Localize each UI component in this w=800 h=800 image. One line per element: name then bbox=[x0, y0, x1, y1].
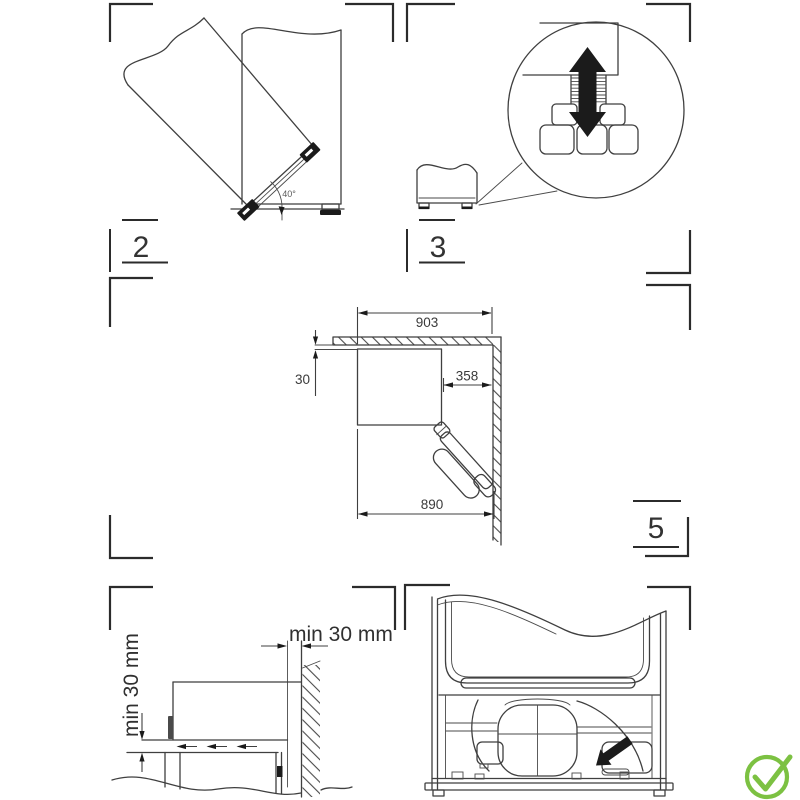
base-plate bbox=[425, 783, 673, 790]
panel-door-tilt: 2 40° bbox=[110, 4, 393, 272]
crop-mark bbox=[110, 587, 153, 630]
open-door bbox=[417, 421, 501, 509]
break-line bbox=[124, 18, 204, 85]
leveling-foot bbox=[609, 125, 638, 154]
back-panel bbox=[446, 600, 650, 683]
hinge bbox=[299, 142, 320, 163]
crop-mark bbox=[110, 4, 153, 42]
floor-break-line bbox=[112, 777, 301, 794]
appliance-door-edge bbox=[168, 716, 173, 739]
callout-tail bbox=[476, 163, 557, 205]
crop-mark bbox=[405, 585, 450, 630]
mounting-rails bbox=[446, 723, 651, 733]
panel-number: 5 bbox=[648, 512, 665, 545]
tilted-cabinet-edge bbox=[204, 18, 313, 146]
airflow-arrow-icon bbox=[177, 744, 187, 749]
foot-pad bbox=[462, 207, 472, 210]
base-foot bbox=[433, 790, 444, 796]
crop-mark bbox=[345, 4, 393, 42]
fridge-top-view bbox=[358, 349, 442, 425]
airflow-arrow-icon bbox=[237, 744, 247, 749]
compressor-dome bbox=[505, 699, 570, 705]
panel-number: 2 bbox=[133, 231, 150, 264]
manual-page: 2 40° 3 bbox=[0, 0, 800, 800]
foot-pad bbox=[419, 207, 429, 210]
tilted-cabinet-edge bbox=[128, 85, 248, 206]
arrowhead bbox=[358, 511, 368, 516]
bracket-curve bbox=[577, 701, 643, 771]
arrowhead bbox=[139, 753, 144, 762]
pointer-arrow-icon bbox=[596, 736, 633, 765]
dimension-value: 30 bbox=[295, 372, 310, 387]
panel-leveling-feet: 3 bbox=[407, 4, 690, 273]
crop-mark bbox=[646, 230, 690, 273]
door-slab bbox=[439, 430, 495, 490]
crop-mark bbox=[646, 4, 690, 42]
cabinet-side-right bbox=[661, 611, 667, 789]
dimension-value: 890 bbox=[421, 497, 444, 512]
compartment-sides bbox=[446, 695, 653, 778]
dimension-value: 903 bbox=[416, 315, 439, 330]
crop-mark bbox=[646, 285, 690, 330]
break-line bbox=[242, 28, 341, 34]
arrowhead bbox=[313, 350, 318, 358]
arrowhead bbox=[278, 643, 288, 648]
arc-arrowhead bbox=[279, 206, 285, 215]
extension-line bbox=[315, 345, 357, 350]
arrowhead bbox=[484, 511, 494, 516]
airflow-arrow-icon bbox=[207, 744, 217, 749]
wall-hatch bbox=[303, 665, 321, 797]
floor-break-line bbox=[321, 787, 352, 790]
bracket-curve bbox=[472, 700, 489, 771]
foot-pad bbox=[320, 210, 341, 215]
installation-diagram: 2 40° 3 bbox=[0, 0, 800, 800]
corner-foot bbox=[237, 199, 260, 221]
cabinet-side-left bbox=[432, 597, 438, 789]
dimension-value: 358 bbox=[456, 369, 479, 384]
door-handle bbox=[430, 446, 483, 502]
base-foot bbox=[654, 790, 665, 796]
crop-mark bbox=[110, 515, 153, 558]
panel-rear-view: 5 bbox=[405, 501, 690, 796]
bottom-gap-label: min 30 mm bbox=[120, 633, 143, 737]
break-line bbox=[417, 164, 477, 173]
cabinet-corner bbox=[523, 23, 618, 75]
crop-mark bbox=[407, 4, 455, 42]
arrowhead bbox=[313, 337, 318, 345]
arrowhead bbox=[444, 382, 454, 387]
arrowhead bbox=[482, 382, 492, 387]
back-panel-inner bbox=[452, 602, 644, 677]
angle-label: 40° bbox=[282, 189, 296, 199]
arrowhead bbox=[482, 310, 492, 315]
break-line bbox=[438, 595, 667, 636]
crop-mark bbox=[110, 278, 153, 327]
leveling-foot bbox=[540, 125, 574, 154]
arrowhead bbox=[358, 310, 368, 315]
panel-clearances-top-view: 30 903 358 890 bbox=[110, 278, 690, 558]
plinth-clip bbox=[277, 766, 283, 777]
rear-gap-label: min 30 mm bbox=[289, 623, 393, 646]
panel-ventilation-side-view: min 30 mm min 30 mm bbox=[110, 587, 395, 797]
panel-number: 3 bbox=[430, 231, 447, 264]
crop-mark bbox=[647, 587, 690, 630]
check-circle-icon bbox=[747, 757, 790, 797]
